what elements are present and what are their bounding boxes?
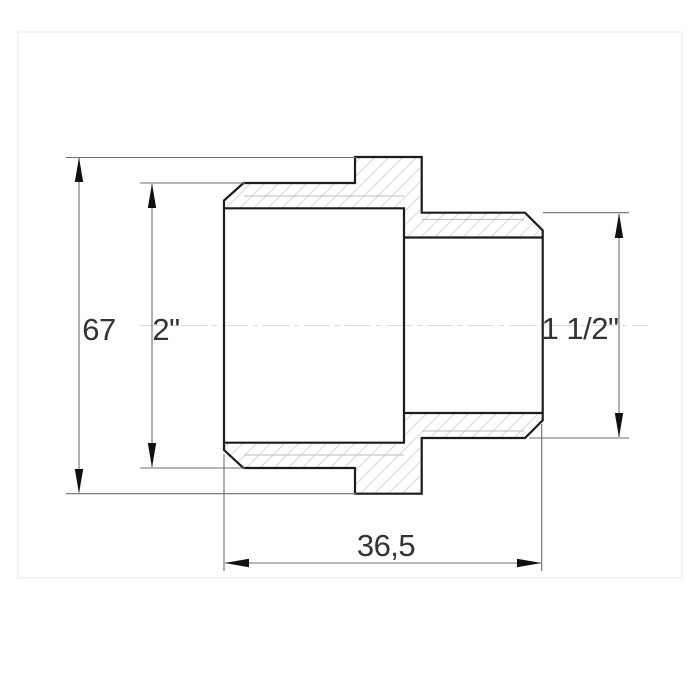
arrowhead-right <box>517 559 542 567</box>
arrowhead-down <box>615 413 623 438</box>
hatch-band-top <box>224 157 543 238</box>
dimension-length-label: 36,5 <box>357 528 415 563</box>
dimension-male-thread-1-1-2in: 1 1/2" <box>529 213 629 438</box>
arrowhead-up <box>615 213 623 238</box>
dimension-male-thread-label: 1 1/2" <box>542 311 619 346</box>
dimension-female-thread-label: 2" <box>152 312 179 347</box>
dimension-height-label: 67 <box>82 312 115 347</box>
hatch-band-bottom <box>224 413 543 494</box>
arrowhead-up <box>148 184 156 209</box>
image-frame-border <box>18 32 682 578</box>
arrowhead-down <box>75 469 83 494</box>
arrowhead-down <box>148 443 156 468</box>
arrowhead-up <box>75 158 83 183</box>
arrowhead-left <box>225 559 250 567</box>
technical-drawing-canvas: 67 2" 1 1/2" 36,5 <box>0 0 700 700</box>
